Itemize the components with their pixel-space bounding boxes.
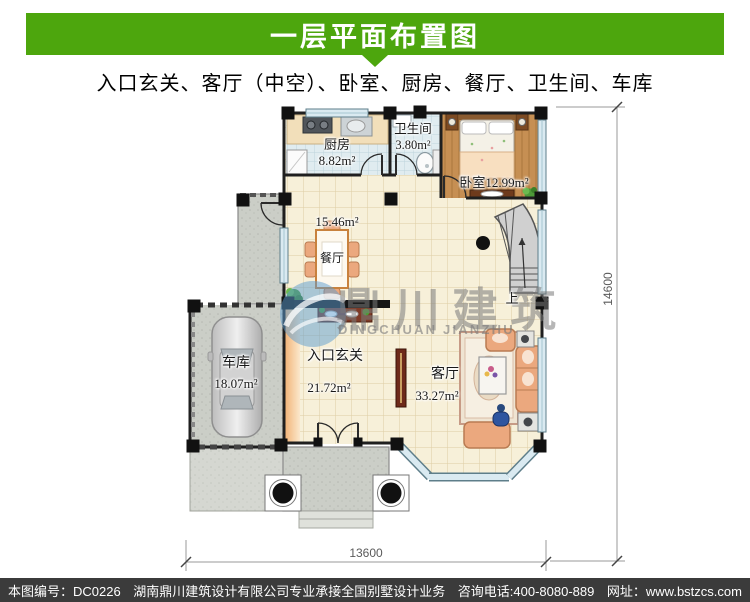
living-window	[538, 338, 546, 432]
watermark-en: DINGCHUAN JIANZHU	[338, 322, 515, 337]
room-label-bedroom: 卧室12.99m²	[446, 175, 542, 191]
dining-window	[280, 228, 288, 283]
room-label-living: 客厅	[427, 366, 463, 384]
coffee-table	[479, 357, 506, 394]
floor-plan-page: 一层平面布置图 入口玄关、客厅（中空）、卧室、厨房、餐厅、卫生间、车库	[0, 0, 750, 602]
stair-up-label: 上	[504, 291, 520, 307]
terrace	[238, 194, 283, 304]
bed	[459, 114, 515, 178]
dimension-bottom: 13600	[336, 546, 396, 560]
room-label-dining-name: 餐厅	[318, 251, 346, 266]
room-label-living-area: 33.27m²	[408, 388, 466, 404]
drawing-number: 本图编号：DC0226	[8, 581, 121, 600]
room-label-entry-area: 21.72m²	[297, 380, 361, 396]
dimension-right: 14600	[601, 258, 615, 320]
room-label-garage: 车库	[208, 355, 264, 373]
round-column	[476, 236, 490, 250]
room-label-dining-area: 15.46m²	[303, 214, 371, 230]
room-label-entry: 入口玄关	[301, 348, 369, 366]
phone-info: 咨询电话:400-8080-889	[458, 581, 595, 600]
room-label-kitchen: 厨房8.82m²	[303, 137, 371, 170]
room-label-garage-area: 18.07m²	[204, 376, 268, 392]
website-info: 网址：www.bstzcs.com	[607, 581, 742, 600]
toilet-icon	[417, 153, 434, 174]
company-info: 湖南鼎川建筑设计有限公司专业承接全国别墅设计业务	[133, 581, 445, 600]
kitchen-window	[306, 109, 368, 117]
footer-bar: 本图编号：DC0226 湖南鼎川建筑设计有限公司专业承接全国别墅设计业务 咨询电…	[0, 578, 750, 602]
entry-console	[396, 349, 406, 407]
room-label-bath: 卫生间3.80m²	[384, 122, 442, 153]
